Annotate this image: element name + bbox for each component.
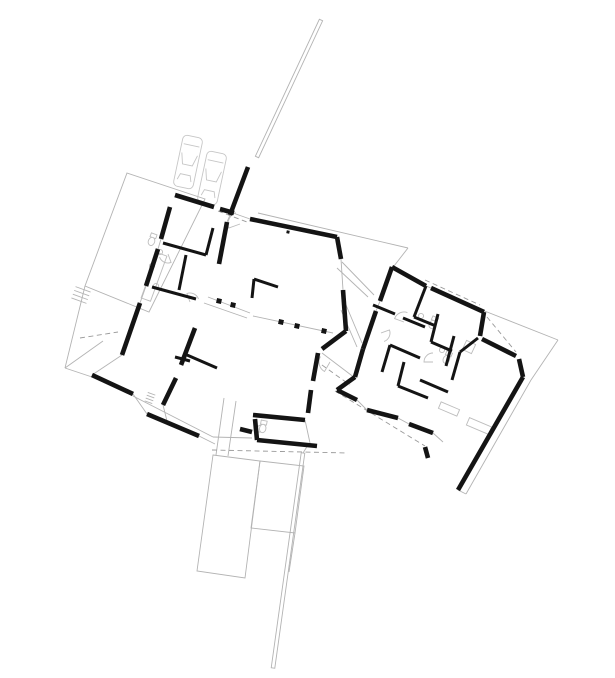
- column: [321, 328, 327, 334]
- line-segment: [425, 447, 428, 458]
- line-segment: [322, 353, 355, 378]
- boundary-strip-north: [255, 19, 322, 158]
- line-segment: [342, 262, 374, 295]
- hatch-line: [148, 392, 156, 395]
- line-segment: [228, 401, 236, 456]
- line-segment: [420, 380, 448, 392]
- line-segment: [240, 429, 252, 432]
- wardrobe-2: [438, 402, 459, 416]
- line-segment: [343, 290, 346, 331]
- line-segment: [380, 267, 392, 301]
- line-segment: [308, 390, 311, 413]
- line-segment: [346, 305, 362, 343]
- line-segment: [289, 533, 295, 572]
- hatch-line: [147, 395, 155, 398]
- line-segment: [255, 419, 257, 440]
- column: [230, 302, 236, 308]
- line-segment: [252, 279, 254, 298]
- line-segment: [355, 349, 363, 377]
- line-segment: [390, 345, 420, 358]
- line-segment: [219, 222, 227, 264]
- line-segment: [147, 414, 199, 436]
- line-segment: [257, 440, 317, 446]
- line-segment: [531, 340, 558, 380]
- wardrobe-1: [466, 418, 491, 435]
- column: [216, 298, 222, 304]
- line-segment: [253, 316, 333, 333]
- floor-plan-drawing: [0, 0, 615, 678]
- line-segment: [158, 239, 161, 249]
- car-hood-line: [208, 160, 224, 163]
- line-segment: [414, 286, 426, 317]
- car-rear-window: [201, 189, 216, 198]
- line-segment: [92, 375, 133, 394]
- terrace-lower: [251, 461, 304, 533]
- line-segment: [254, 279, 278, 287]
- dashed-lines: [80, 211, 516, 453]
- car-body-outline: [197, 150, 227, 205]
- line-segment: [212, 450, 348, 453]
- line-segment: [519, 359, 523, 377]
- toilet-fixture: [259, 420, 268, 433]
- line-segment: [175, 195, 214, 207]
- line-segment: [133, 396, 213, 437]
- hatch-line: [146, 398, 154, 401]
- door-swing-arc: [319, 357, 330, 372]
- terrace-upper: [197, 455, 260, 578]
- line-segment: [367, 410, 398, 418]
- line-segment: [482, 339, 516, 356]
- line-segment: [179, 255, 186, 290]
- car-hood-line: [184, 144, 200, 147]
- car-windshield: [204, 169, 222, 183]
- site-outlines: [85, 173, 304, 578]
- line-segment: [258, 213, 408, 248]
- line-segment: [161, 207, 170, 239]
- column: [286, 230, 290, 234]
- line-segment: [315, 360, 350, 385]
- line-segment: [433, 433, 443, 442]
- line-segment: [431, 288, 484, 312]
- line-segment: [305, 420, 310, 443]
- line-segment: [394, 248, 408, 266]
- floor-plan-page: [0, 0, 615, 678]
- line-segment: [140, 286, 146, 303]
- line-segment: [398, 418, 409, 424]
- parked-car-1: [173, 134, 203, 189]
- car-windshield: [180, 153, 198, 167]
- line-segment: [337, 377, 355, 390]
- line-segment: [341, 259, 343, 290]
- line-segment: [208, 297, 250, 313]
- sill-hatch: [145, 392, 156, 403]
- parked-car-2: [197, 150, 227, 205]
- line-segment: [92, 355, 122, 375]
- line-segment: [409, 424, 433, 433]
- column: [278, 319, 284, 325]
- line-segment: [382, 345, 390, 372]
- door-swing-arcs: [160, 213, 433, 432]
- line-segment: [398, 362, 404, 386]
- line-segment: [452, 352, 460, 380]
- boundary-strip-south: [271, 453, 305, 668]
- structural-columns: [216, 230, 327, 334]
- car-rear-window: [177, 173, 192, 182]
- line-segment: [146, 249, 158, 286]
- line-segment: [392, 267, 426, 286]
- line-segment: [425, 280, 480, 305]
- line-segment: [122, 303, 140, 355]
- line-segment: [206, 228, 213, 255]
- exterior-walls: [92, 167, 523, 490]
- carport-outline: [85, 173, 205, 312]
- car-body-outline: [173, 134, 203, 189]
- line-segment: [337, 390, 357, 400]
- line-segment: [65, 368, 92, 377]
- line-segment: [187, 355, 217, 368]
- door-swing-arc: [381, 330, 390, 342]
- line-segment: [253, 415, 305, 420]
- line-segment: [216, 398, 224, 455]
- toilet-fixture: [147, 233, 157, 247]
- line-segment: [163, 243, 206, 255]
- line-segment: [480, 312, 484, 336]
- line-segment: [398, 386, 428, 398]
- door-swing-arc: [424, 353, 433, 362]
- line-segment: [335, 391, 425, 446]
- line-segment: [313, 353, 318, 381]
- line-segment: [163, 378, 176, 405]
- line-segment: [230, 167, 248, 215]
- line-segment: [363, 311, 376, 349]
- column: [294, 323, 300, 329]
- line-segment: [337, 237, 341, 259]
- line-segment: [80, 332, 118, 338]
- line-segment: [458, 377, 523, 490]
- line-segment: [204, 303, 247, 318]
- line-segment: [466, 380, 531, 494]
